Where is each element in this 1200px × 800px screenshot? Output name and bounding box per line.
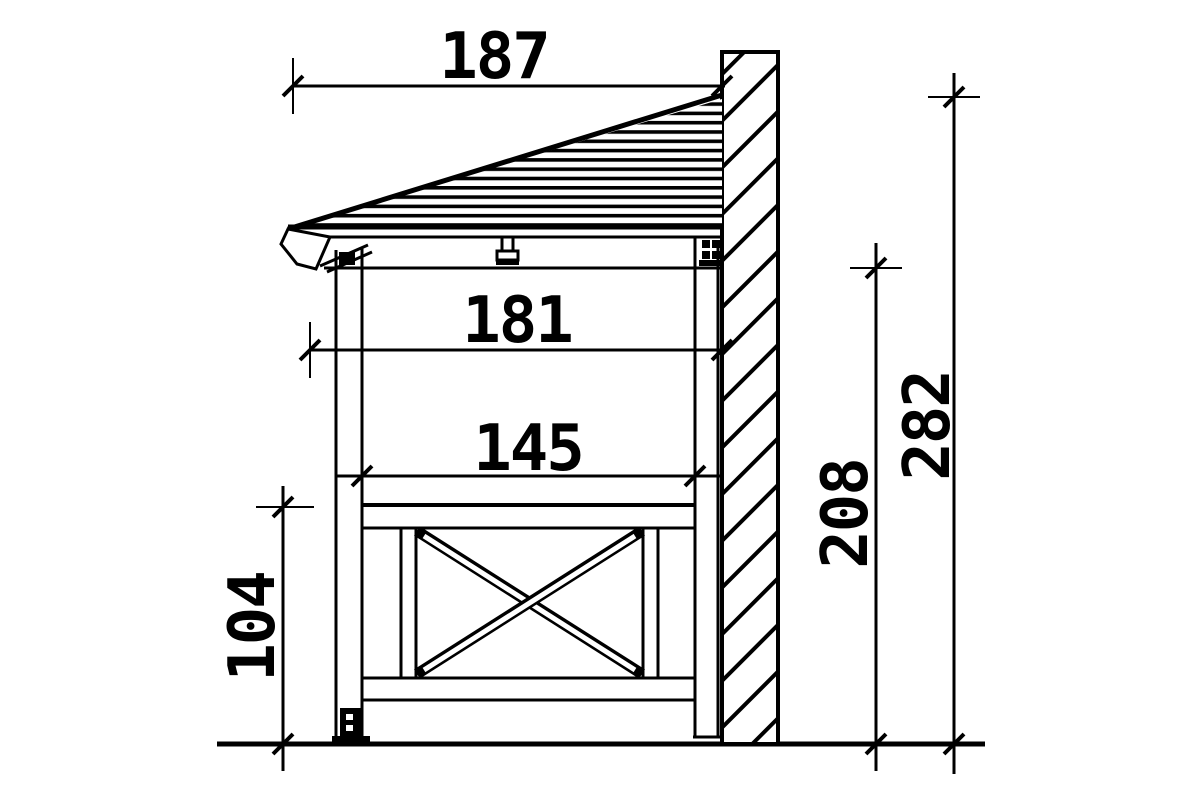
bracket-base: [496, 259, 519, 265]
bracket-tab: [502, 237, 513, 251]
anchor-foot: [332, 736, 370, 746]
anchor-body: [340, 708, 362, 736]
wall-hatching: [722, 52, 778, 744]
bolt-square: [702, 251, 710, 259]
dimension-label-middle-width: 181: [462, 284, 572, 358]
dimension-label-outer-height: 282: [891, 371, 965, 481]
anchor-bolt-hole: [346, 725, 353, 731]
dimension-label-inner-height: 208: [809, 459, 883, 569]
canvas-background: [0, 0, 1200, 800]
bolt-square: [702, 240, 710, 248]
technical-drawing: 187 181 145 104 208 282: [0, 0, 1200, 800]
post-cap-bracket: [339, 252, 355, 265]
dimension-label-top-width: 187: [439, 20, 549, 94]
dimension-label-left-height: 104: [216, 572, 290, 682]
dimension-label-inner-width: 145: [473, 412, 583, 486]
bracket-body: [497, 251, 518, 260]
side-view-drawing: 187 181 145 104 208 282: [0, 0, 1200, 800]
house-wall: [722, 52, 778, 744]
anchor-bolt-hole: [346, 714, 353, 720]
